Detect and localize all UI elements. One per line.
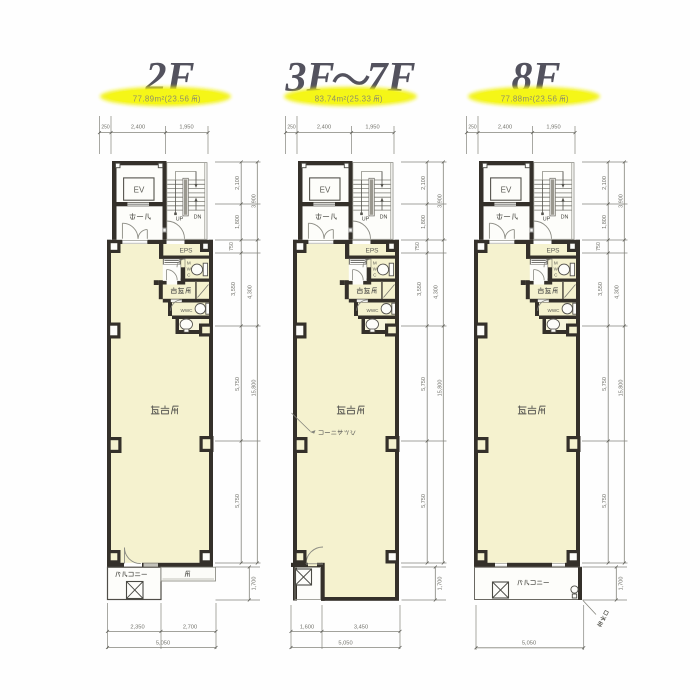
svg-text:W: W [187,267,192,272]
svg-text:5,750: 5,750 [235,377,241,391]
svg-text:1,950: 1,950 [365,124,379,130]
svg-text:WWC: WWC [548,308,561,313]
svg-text:3,550: 3,550 [598,282,604,296]
svg-text:3,900: 3,900 [251,194,257,208]
svg-text:3,450: 3,450 [354,625,368,631]
svg-text:1,600: 1,600 [300,625,314,631]
svg-text:EPS: EPS [546,248,560,255]
svg-text:5,750: 5,750 [602,377,608,391]
svg-text:): ) [566,95,569,104]
svg-text:EPS: EPS [179,248,193,255]
svg-text:3,550: 3,550 [231,282,237,296]
svg-text:WWC: WWC [181,308,194,313]
svg-text:UP: UP [543,217,551,223]
svg-text:83.74m²(25.33: 83.74m²(25.33 [315,95,372,104]
svg-text:15,800: 15,800 [618,380,624,397]
svg-text:77.89m²(23.56: 77.89m²(23.56 [133,95,190,104]
svg-text:2,100: 2,100 [421,176,427,190]
svg-text:4,300: 4,300 [247,285,253,299]
svg-text:M: M [554,261,558,266]
svg-text:EV: EV [501,186,512,195]
svg-text:W: W [554,267,559,272]
svg-text:250: 250 [287,124,296,130]
svg-text:5,750: 5,750 [602,494,608,508]
svg-text:1,700: 1,700 [252,577,258,591]
svg-text:1,950: 1,950 [179,124,193,130]
svg-text:EPS: EPS [365,248,379,255]
svg-text:750: 750 [229,242,235,251]
svg-text:250: 250 [468,124,477,130]
svg-text:): ) [380,95,383,104]
svg-text:250: 250 [101,124,110,130]
svg-text:EV: EV [320,186,331,195]
svg-text:3,900: 3,900 [618,194,624,208]
svg-text:M: M [373,261,377,266]
svg-text:1,700: 1,700 [438,577,444,591]
svg-text:3,550: 3,550 [417,282,423,296]
svg-text:WWC: WWC [367,308,380,313]
svg-text:5,050: 5,050 [338,641,352,647]
svg-text:2,100: 2,100 [602,176,608,190]
svg-text:2,400: 2,400 [317,124,331,130]
svg-text:15,800: 15,800 [251,380,257,397]
svg-text:77.88m²(23.56: 77.88m²(23.56 [501,95,558,104]
svg-text:1,950: 1,950 [546,124,560,130]
svg-text:EV: EV [134,186,145,195]
svg-text:5,050: 5,050 [156,641,170,647]
svg-text:15,800: 15,800 [437,380,443,397]
svg-text:4,300: 4,300 [614,285,620,299]
svg-text:DN: DN [561,215,569,221]
svg-text:): ) [198,95,201,104]
svg-text:750: 750 [415,242,421,251]
svg-text:5,050: 5,050 [522,641,536,647]
svg-text:2,100: 2,100 [235,176,241,190]
svg-text:1,800: 1,800 [235,215,241,229]
svg-text:UP: UP [176,217,184,223]
svg-text:2,400: 2,400 [131,124,145,130]
svg-text:1,800: 1,800 [602,215,608,229]
svg-text:DN: DN [380,215,388,221]
svg-text:2,700: 2,700 [183,625,197,631]
svg-text:3,900: 3,900 [437,194,443,208]
svg-text:W: W [373,267,378,272]
svg-text:750: 750 [596,242,602,251]
svg-text:2,350: 2,350 [130,625,144,631]
svg-text:DN: DN [194,215,202,221]
svg-text:5,750: 5,750 [421,494,427,508]
svg-text:UP: UP [362,217,370,223]
svg-text:2,400: 2,400 [498,124,512,130]
svg-text:5,750: 5,750 [421,377,427,391]
svg-text:1,800: 1,800 [421,215,427,229]
svg-text:M: M [187,261,191,266]
svg-text:1,700: 1,700 [619,577,625,591]
svg-text:4,300: 4,300 [433,285,439,299]
svg-text:5,750: 5,750 [235,494,241,508]
